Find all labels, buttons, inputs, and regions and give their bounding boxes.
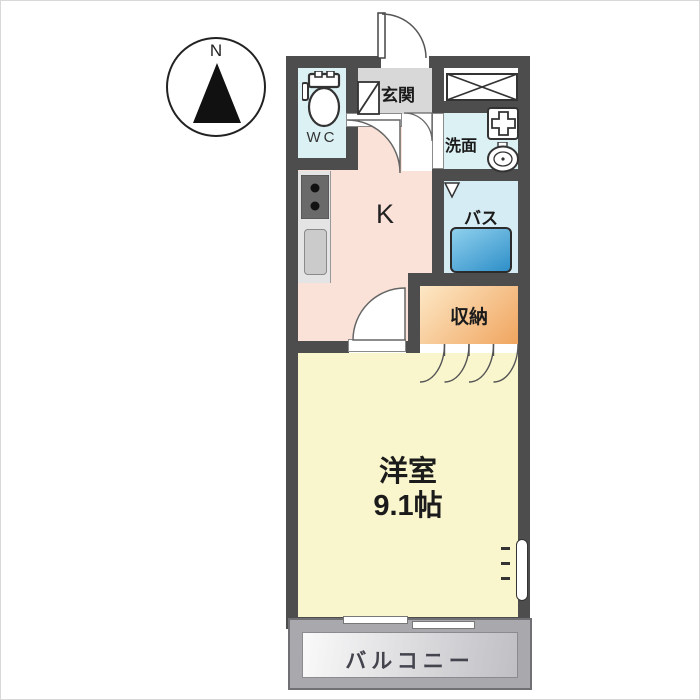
bath-label: バス bbox=[464, 204, 498, 229]
basin-icon bbox=[486, 142, 520, 173]
stove-icon bbox=[301, 175, 329, 219]
bath-door-icon bbox=[445, 183, 459, 197]
folding-door-icon bbox=[420, 344, 518, 382]
storage-label: 収納 bbox=[420, 302, 518, 329]
shoe-closet-x-icon bbox=[446, 73, 518, 101]
side-window-icon bbox=[516, 539, 528, 601]
genkan-cabinet-icon bbox=[357, 81, 380, 115]
door-swing-icon bbox=[1, 1, 700, 700]
floorplan-canvas: N bbox=[0, 0, 700, 700]
ladder-mark bbox=[501, 562, 510, 565]
bathtub-icon bbox=[450, 227, 512, 273]
ladder-mark bbox=[501, 547, 510, 550]
kitchen-label: K bbox=[376, 199, 394, 230]
sliding-window-icon bbox=[343, 616, 408, 624]
ladder-mark bbox=[501, 577, 510, 580]
wc-label: WC bbox=[298, 129, 346, 146]
balcony-label: バルコニー bbox=[302, 645, 518, 675]
sliding-window-icon bbox=[412, 621, 475, 629]
kitchen-sink-icon bbox=[304, 229, 327, 275]
washroom-label: 洗面 bbox=[445, 132, 477, 156]
toilet-icon bbox=[302, 71, 346, 129]
washing-machine-pan-icon bbox=[487, 107, 520, 141]
western-room-size: 9.1帖 bbox=[298, 482, 518, 524]
entrance-door-icon bbox=[378, 13, 385, 58]
genkan-label: 玄関 bbox=[381, 81, 415, 106]
